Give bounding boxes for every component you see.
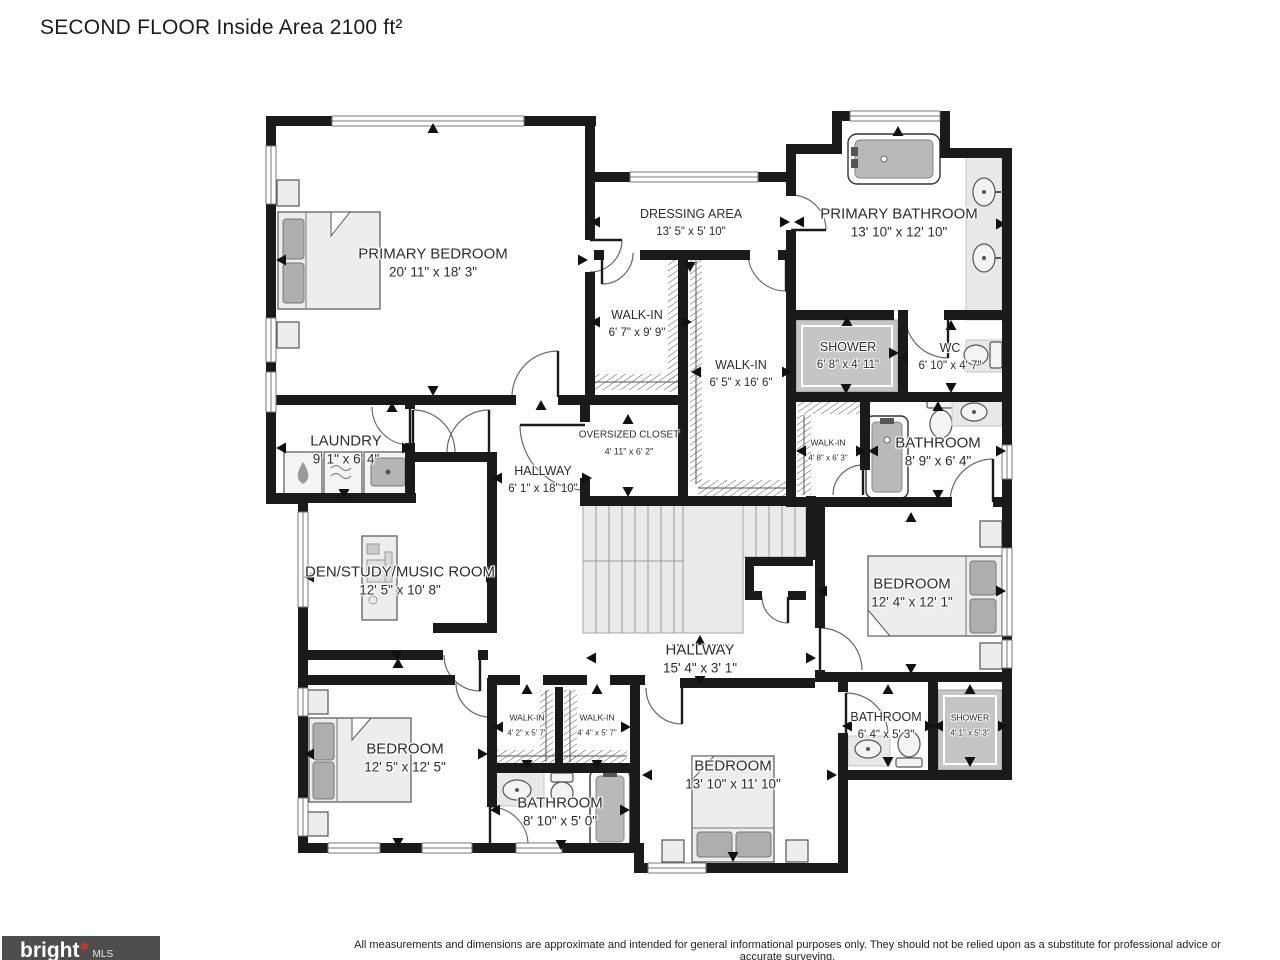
- room-label-walk-in-a: WALK-IN6' 7" x 9' 9": [609, 308, 666, 342]
- brightmls-logo-text: bright: [20, 939, 79, 960]
- room-label-bathroom-upper: BATHROOM8' 9" x 6' 4": [895, 435, 981, 472]
- room-label-hallway-upper: HALLWAY6' 1" x 18' 10": [508, 464, 577, 498]
- room-label-wc: WC6' 10" x 4' 7": [918, 341, 981, 375]
- room-label-bedroom-left: BEDROOM12' 5" x 12' 5": [364, 741, 446, 778]
- room-label-walk-in-b: WALK-IN6' 5" x 16' 6": [709, 358, 772, 392]
- room-label-shower-lower: SHOWER4' 1" x 5' 3": [950, 713, 989, 742]
- brightmls-star-icon: ✱: [79, 940, 89, 954]
- disclaimer-text: All measurements and dimensions are appr…: [345, 939, 1230, 960]
- room-label-shower-primary: SHOWER6' 8" x 4' 11": [817, 340, 879, 374]
- room-label-bedroom-right: BEDROOM12' 4" x 12' 1": [871, 576, 953, 613]
- bathtub-primary: [848, 134, 940, 184]
- room-label-laundry: LAUNDRY9' 1" x 6' 4": [310, 433, 381, 470]
- brightmls-logo: bright✱MLS: [2, 936, 160, 960]
- room-label-den-study: DEN/STUDY/MUSIC ROOM12' 5" x 10' 8": [305, 564, 495, 601]
- room-label-bathroom-lower-left: BATHROOM8' 10" x 5' 0": [517, 795, 603, 832]
- room-label-primary-bedroom: PRIMARY BEDROOM20' 11" x 18' 3": [358, 246, 507, 283]
- room-label-primary-bathroom: PRIMARY BATHROOM13' 10" x 12' 10": [820, 206, 978, 243]
- room-label-walk-in-d: WALK-IN4' 2" x 5' 7": [507, 713, 546, 742]
- floor-plan-page: SECOND FLOOR Inside Area 2100 ft²: [0, 0, 1280, 960]
- staircase: [583, 500, 806, 645]
- room-label-walk-in-c: WALK-IN4' 8" x 6' 3": [808, 438, 847, 467]
- brightmls-logo-suffix: MLS: [93, 949, 114, 960]
- room-label-bedroom-bottom: BEDROOM13' 10" x 11' 10": [685, 758, 781, 795]
- floor-plan-drawing: [0, 0, 1280, 960]
- toilet-upper: [927, 398, 955, 438]
- room-label-bathroom-lower-right: BATHROOM6' 4" x 5' 3": [850, 710, 921, 744]
- room-label-walk-in-e: WALK-IN4' 4" x 5' 7": [577, 713, 616, 742]
- room-label-hallway-lower: HALLWAY15' 4" x 3' 1": [663, 642, 737, 679]
- room-label-dressing-area: DRESSING AREA13' 5" x 5' 10": [640, 207, 742, 241]
- room-label-oversized-closet: OVERSIZED CLOSET4' 11" x 6' 2": [579, 430, 680, 461]
